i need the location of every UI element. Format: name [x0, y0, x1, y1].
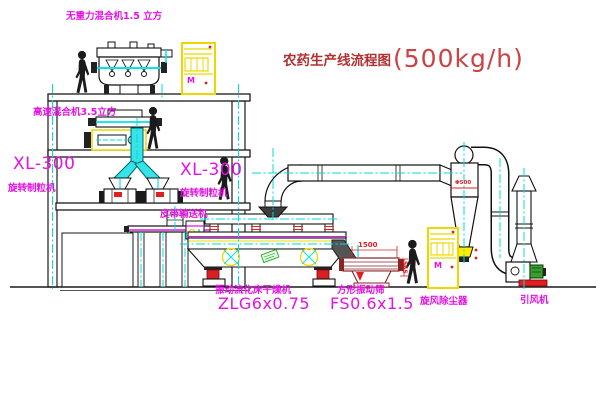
indicator-dot-icon [451, 266, 454, 269]
cabinet2-marking: M [434, 262, 441, 270]
indicator-dot-icon [205, 82, 208, 85]
ground-floor-wall [62, 233, 133, 287]
fluid-bed-dryer-drawing [186, 214, 346, 286]
diagram-canvas: 农药生产线流程图 (500kg/h) 无重力混合机1.5 立方 高速混合机3.5… [0, 0, 600, 403]
label-granulator-right-model: XL-300 [180, 162, 242, 179]
dim-screen-height: 565 [401, 261, 407, 274]
floor-slab-1 [48, 94, 250, 101]
dim-cyclone-dia: Φ500 [455, 181, 471, 187]
gravity-mixer-drawing [91, 42, 172, 94]
induced-draft-fan-drawing [506, 262, 547, 286]
title-chinese: 农药生产线流程图 [283, 49, 391, 69]
control-cabinet-1 [182, 43, 215, 94]
label-granulator-left-model: XL-300 [13, 156, 75, 173]
floor-slab-3 [56, 203, 250, 210]
person-figure [76, 51, 90, 93]
label-belt-conveyor: 皮带输送机 [160, 210, 208, 220]
label-fan: 引风机 [520, 296, 549, 306]
control-cabinet-2 [428, 228, 458, 288]
label-gravity-mixer: 无重力混合机1.5 立方 [66, 12, 162, 22]
granulator-left-drawing [99, 178, 141, 203]
title-capacity: (500kg/h) [393, 44, 524, 73]
person-figure [147, 107, 161, 149]
granulator-right-drawing [141, 178, 183, 203]
label-granulator-right-name: 旋转制粒机 [180, 189, 228, 199]
floor-slab-2 [48, 150, 250, 157]
indicator-dot-icon [452, 231, 455, 234]
label-high-speed-mixer: 高速混合机3.5立方 [33, 108, 116, 118]
cabinet1-marking: M [187, 77, 194, 85]
dim-screen-length: 1500 [358, 242, 377, 249]
label-dryer-model: ZLG6x0.75 [218, 296, 310, 312]
label-granulator-left-name: 旋转制粒机 [8, 184, 56, 194]
indicator-dot-icon [209, 46, 212, 49]
label-screen-model: FS0.6x1.5 [330, 296, 414, 312]
page-title: 农药生产线流程图 (500kg/h) [283, 44, 524, 73]
label-cyclone: 旋风除尘器 [420, 297, 468, 307]
